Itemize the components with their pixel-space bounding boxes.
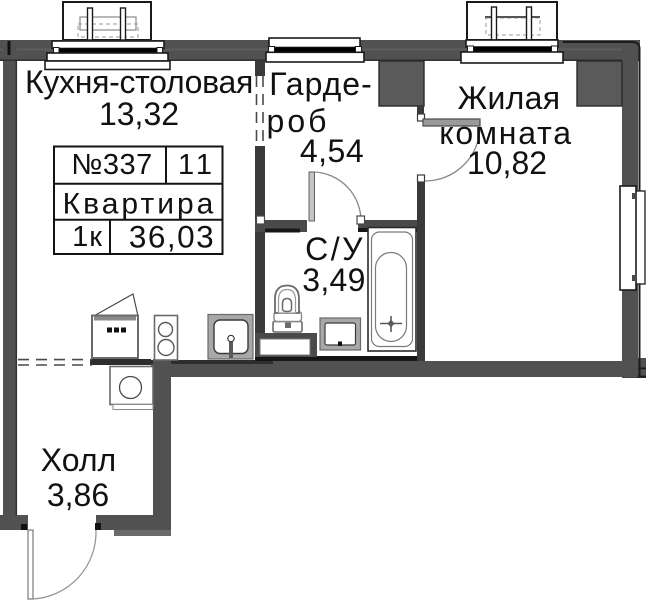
svg-text:10,82: 10,82 (467, 145, 547, 181)
svg-text:36,03: 36,03 (129, 219, 215, 255)
svg-text:№337: №337 (71, 149, 153, 181)
svg-text:11: 11 (178, 149, 216, 181)
svg-text:3,49: 3,49 (302, 262, 365, 298)
svg-text:Жилая: Жилая (458, 80, 561, 116)
svg-text:Квартира: Квартира (63, 188, 217, 221)
svg-text:Холл: Холл (41, 442, 116, 478)
svg-text:Гарде-: Гарде- (269, 66, 373, 102)
svg-text:13,32: 13,32 (99, 96, 179, 132)
svg-text:3,86: 3,86 (47, 477, 109, 513)
svg-text:Кухня-столовая: Кухня-столовая (25, 64, 253, 100)
svg-text:4,54: 4,54 (300, 133, 364, 169)
svg-text:1к: 1к (72, 221, 103, 253)
